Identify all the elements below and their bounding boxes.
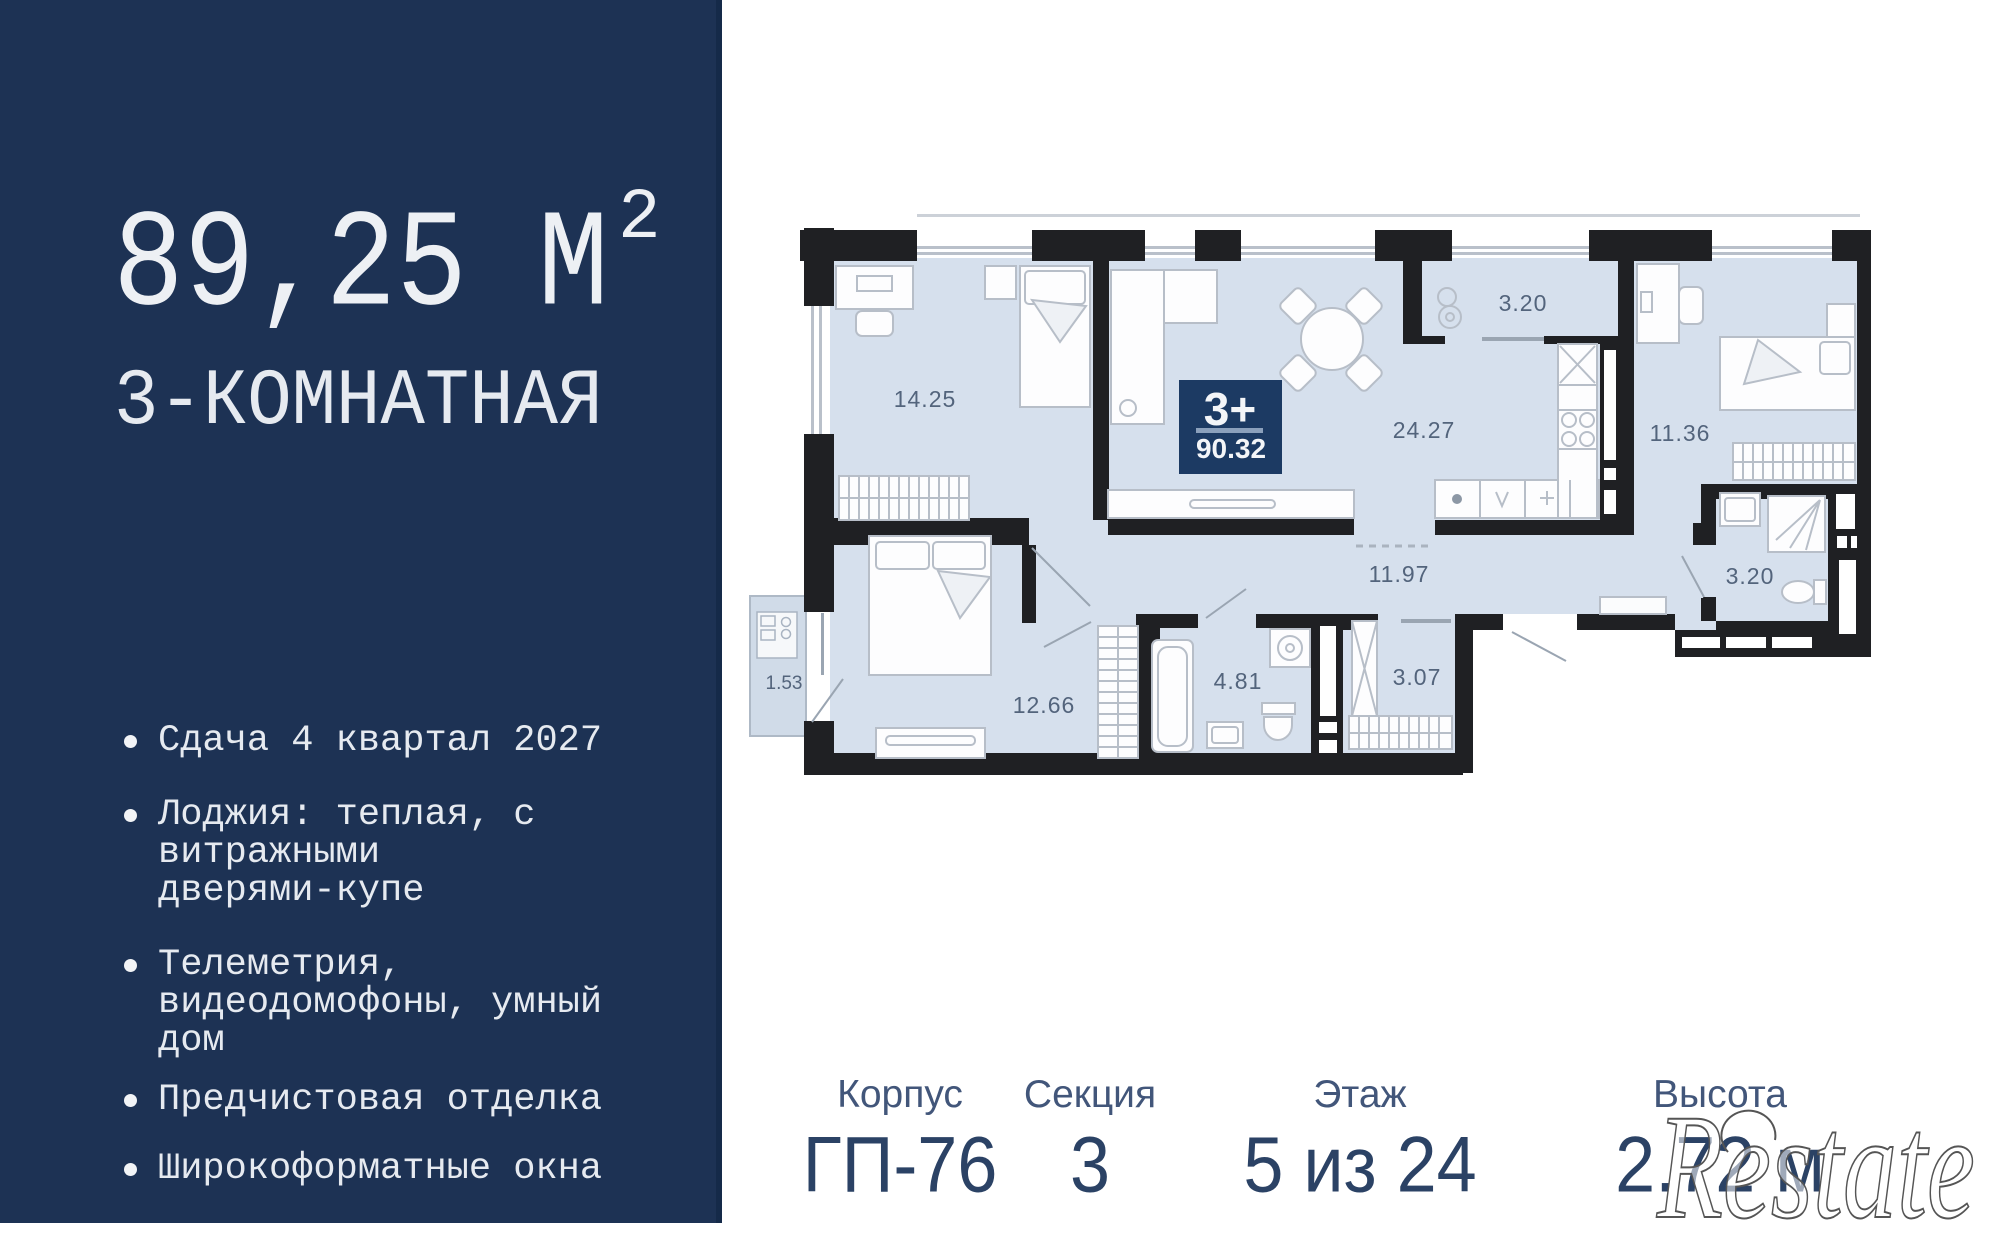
svg-text:12.66: 12.66 [1013, 692, 1076, 718]
svg-text:90.32: 90.32 [1196, 433, 1266, 464]
svg-text:11.97: 11.97 [1369, 561, 1430, 587]
svg-text:3.20: 3.20 [1499, 290, 1548, 316]
svg-text:14.25: 14.25 [894, 386, 957, 412]
svg-text:11.36: 11.36 [1650, 420, 1711, 446]
svg-text:3+: 3+ [1204, 383, 1256, 435]
svg-text:3.20: 3.20 [1726, 563, 1775, 589]
svg-text:3.07: 3.07 [1393, 664, 1442, 690]
svg-text:1.53: 1.53 [766, 673, 803, 694]
svg-text:4.81: 4.81 [1214, 668, 1263, 694]
svg-text:24.27: 24.27 [1393, 417, 1456, 443]
